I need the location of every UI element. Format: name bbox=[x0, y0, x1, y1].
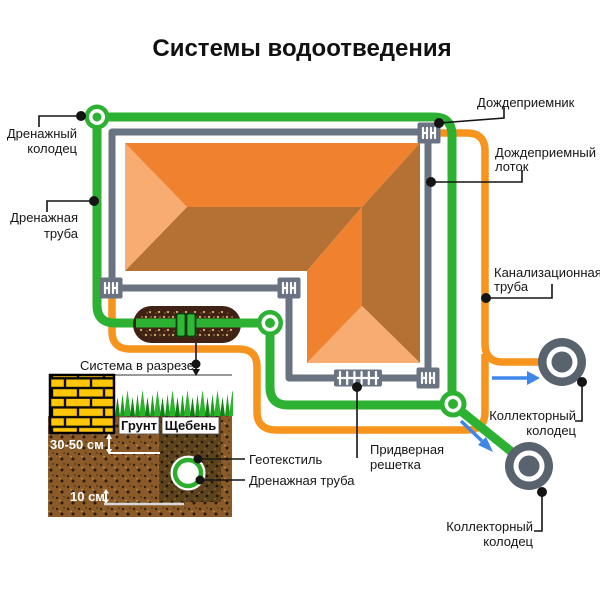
soil-tag: Грунт bbox=[121, 418, 157, 433]
coupling-icon bbox=[177, 314, 196, 337]
junction-core bbox=[265, 318, 275, 328]
label-sewer-pipe-1: Канализационная bbox=[494, 265, 600, 280]
label-drain-pipe-section: Дренажная труба bbox=[249, 473, 355, 488]
collector-core bbox=[519, 456, 540, 477]
label-collector-1a: Коллекторный bbox=[489, 408, 576, 423]
grass bbox=[115, 390, 233, 416]
label-geotextile: Геотекстиль bbox=[249, 452, 323, 467]
junction-a bbox=[257, 310, 283, 336]
drainage-diagram: Системы водоотведения bbox=[0, 0, 600, 600]
label-door-grate-1: Придверная bbox=[370, 442, 444, 457]
label-door-grate-2: решетка bbox=[370, 457, 422, 472]
leader-dot bbox=[577, 377, 587, 387]
cross-section: Грунт Щебень 30-50 см 10 см bbox=[48, 375, 233, 517]
rain-inlet-icon bbox=[100, 278, 123, 299]
drain-well bbox=[85, 105, 110, 130]
label-drain-pipe-1: Дренажная bbox=[10, 210, 78, 225]
label-collector-2a: Коллекторный bbox=[446, 519, 533, 534]
infographic-page: Системы водоотведения bbox=[0, 0, 600, 600]
collector-well-2 bbox=[505, 442, 553, 490]
depth-10-label: 10 см bbox=[70, 489, 105, 504]
collector-core bbox=[552, 352, 573, 373]
junction-core bbox=[448, 399, 458, 409]
leader-dot bbox=[196, 476, 205, 485]
leader-dot bbox=[434, 118, 444, 128]
drain-well-core bbox=[93, 113, 102, 122]
leader-dot bbox=[352, 382, 362, 392]
label-rain-inlet: Дождеприемник bbox=[477, 95, 575, 110]
leader-dot bbox=[76, 111, 86, 121]
leader-dot bbox=[89, 196, 99, 206]
label-rain-tray-2: лоток bbox=[495, 159, 529, 174]
gravel-tag: Щебень bbox=[165, 418, 216, 433]
label-drain-well-2: колодец bbox=[27, 141, 77, 156]
leader-dot bbox=[194, 455, 203, 464]
label-rain-tray-1: Дождеприемный bbox=[495, 145, 596, 160]
label-drain-pipe-2: труба bbox=[44, 226, 79, 241]
depth-30-50-label: 30-50 см bbox=[50, 437, 104, 452]
label-collector-2b: колодец bbox=[483, 534, 533, 549]
page-title: Системы водоотведения bbox=[152, 35, 451, 62]
label-sewer-pipe-2: труба bbox=[494, 279, 529, 294]
leader-dot bbox=[537, 487, 547, 497]
leader-dot bbox=[426, 177, 436, 187]
label-collector-1b: колодец bbox=[526, 423, 576, 438]
rain-inlet-icon bbox=[278, 278, 301, 299]
leader-dot bbox=[481, 293, 491, 303]
brick-wall bbox=[50, 375, 114, 433]
label-drain-well-1: Дренажный bbox=[7, 126, 77, 141]
rain-inlet-icon bbox=[417, 368, 440, 389]
label-section-view: Система в разрезе bbox=[80, 358, 194, 373]
junction-b bbox=[440, 391, 467, 418]
